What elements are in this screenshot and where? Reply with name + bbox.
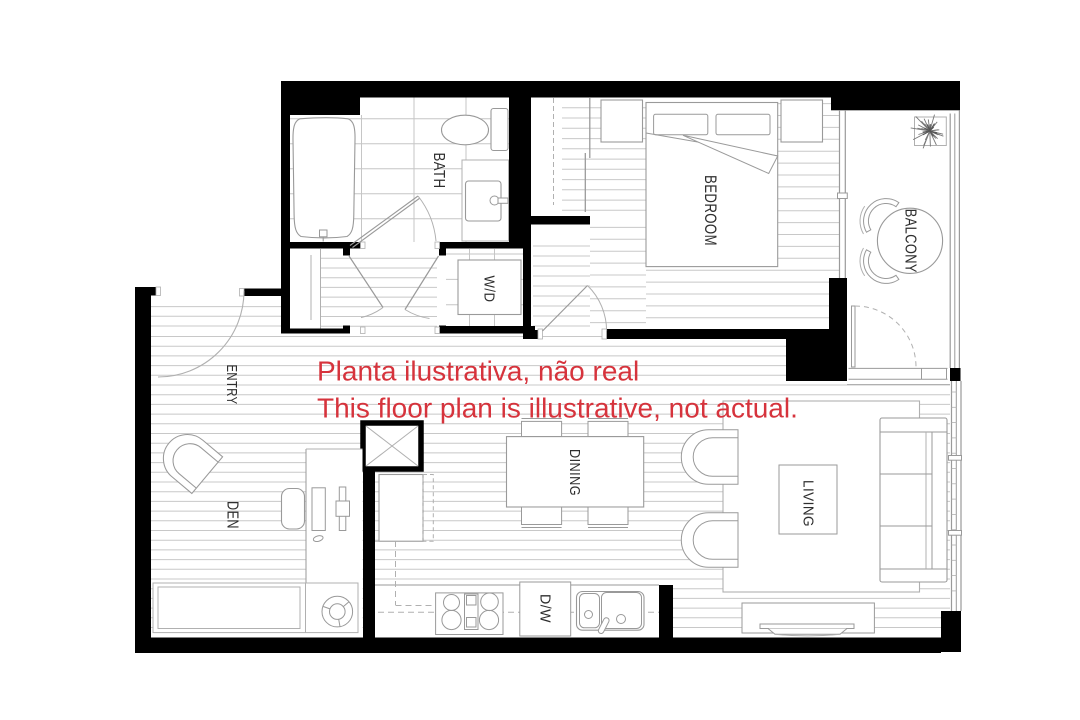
svg-text:LIVING: LIVING bbox=[800, 480, 817, 527]
svg-text:BALCONY: BALCONY bbox=[902, 209, 919, 273]
svg-text:BEDROOM: BEDROOM bbox=[701, 175, 720, 246]
svg-text:ENTRY: ENTRY bbox=[223, 365, 239, 405]
svg-text:This floor plan is illustrativ: This floor plan is illustrative, not act… bbox=[317, 393, 798, 424]
svg-text:DEN: DEN bbox=[224, 501, 241, 529]
svg-text:BATH: BATH bbox=[430, 153, 447, 189]
svg-text:DINING: DINING bbox=[566, 449, 583, 496]
svg-text:W/D: W/D bbox=[481, 276, 498, 303]
svg-text:Planta ilustrativa, não real: Planta ilustrativa, não real bbox=[317, 356, 639, 387]
svg-text:D/W: D/W bbox=[537, 594, 554, 623]
